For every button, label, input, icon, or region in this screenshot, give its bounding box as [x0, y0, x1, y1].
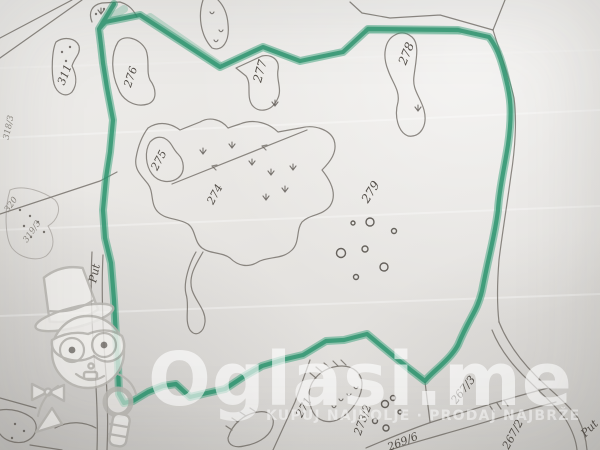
mascot-glasses	[52, 330, 125, 362]
parcel-label-274: 274	[204, 182, 226, 208]
watermark: Oglasi.me KUPUJ NAJBOLJE · PRODAJ NAJBRŽ…	[23, 259, 580, 448]
mascot-magnifier	[105, 389, 131, 447]
cadastral-map: 311 276 277 278 275 274 279 271 273/2 26…	[0, 0, 600, 450]
parcel-label-279: 279	[358, 178, 383, 206]
parcel-label-278: 278	[395, 40, 417, 68]
mascot-eye	[69, 347, 76, 354]
parcel-label-319-3: 319/3	[21, 219, 43, 245]
oglasi-mascot-icon	[23, 259, 136, 448]
mascot-eye	[101, 342, 108, 349]
road-lines-top-left	[0, 0, 82, 58]
mascot-bow-tie	[32, 384, 64, 401]
mascot-teeth	[84, 372, 97, 379]
parcel-274-tail	[185, 252, 205, 334]
parcel-label-277: 277	[250, 58, 270, 85]
top-strip-parcel	[200, 0, 228, 49]
parcel-label-275: 275	[148, 148, 170, 174]
parcel-274-diagonal	[172, 130, 307, 184]
watermark-tagline: KUPUJ NAJBOLJE · PRODAJ NAJBRŽE	[266, 407, 580, 424]
mascot-nose	[88, 363, 93, 368]
map-photo: 311 276 277 278 275 274 279 271 273/2 26…	[0, 0, 600, 450]
road-label-put-right: Put	[578, 417, 600, 441]
parcel-label-320: 320	[3, 195, 21, 215]
parcel-274-outline	[136, 119, 335, 265]
parcel-label-276: 276	[121, 65, 140, 90]
